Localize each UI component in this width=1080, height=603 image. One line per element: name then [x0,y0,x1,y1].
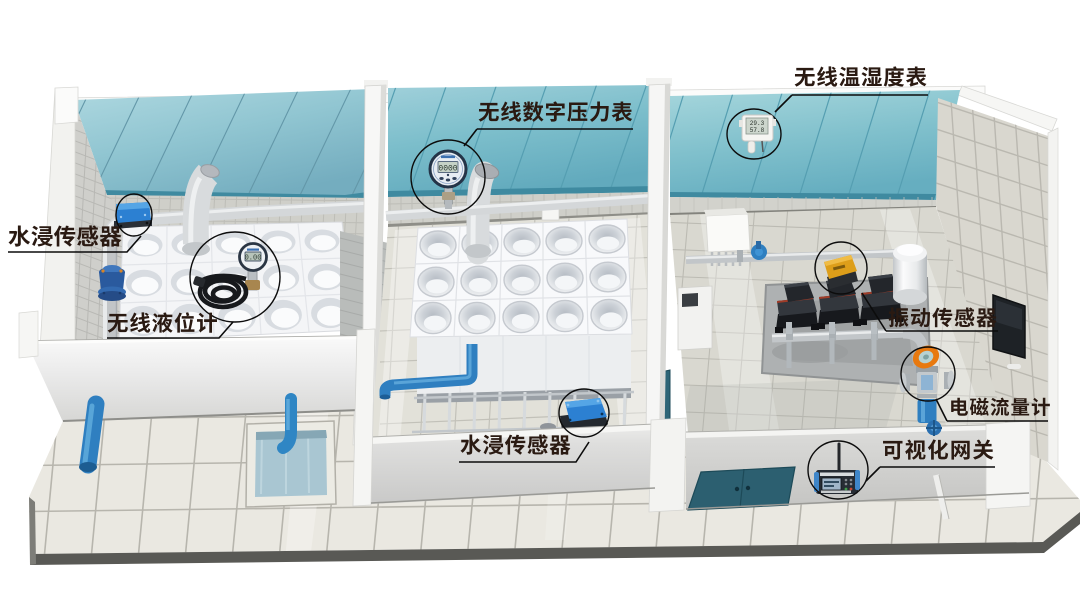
svg-text:0.00: 0.00 [245,255,262,263]
svg-text:29.3: 29.3 [750,120,765,127]
svg-text:57.8: 57.8 [750,127,765,134]
svg-text:0000: 0000 [438,165,457,174]
